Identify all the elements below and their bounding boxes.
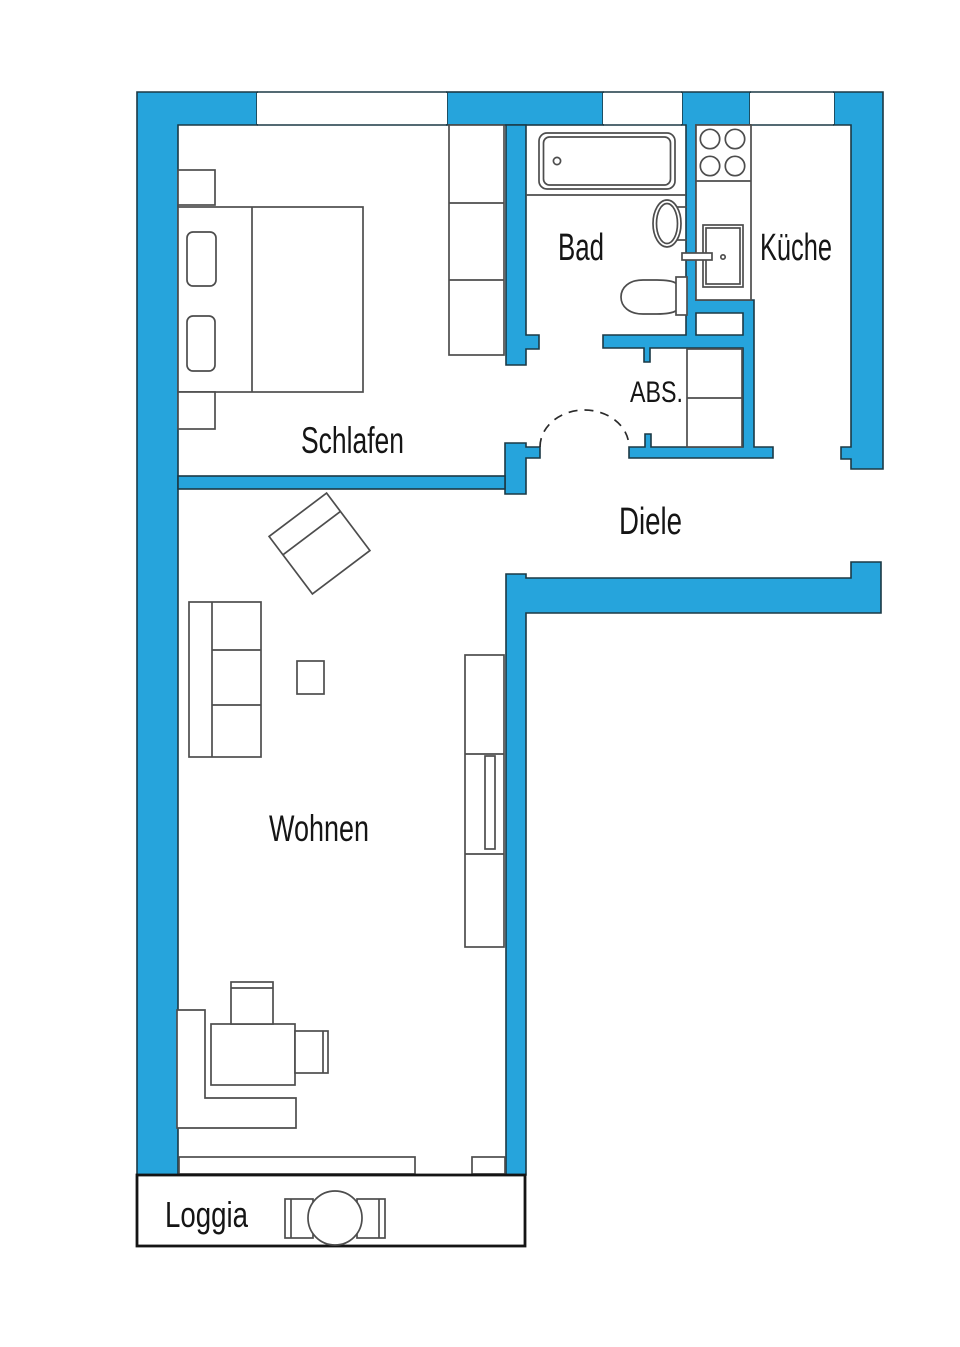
svg-text:Schlafen: Schlafen [301,420,404,461]
svg-text:Loggia: Loggia [165,1194,249,1235]
svg-text:Bad: Bad [558,227,604,269]
svg-text:ABS.: ABS. [630,376,683,409]
svg-text:Küche: Küche [760,227,832,269]
svg-text:Diele: Diele [619,501,682,543]
svg-text:Wohnen: Wohnen [269,808,369,849]
